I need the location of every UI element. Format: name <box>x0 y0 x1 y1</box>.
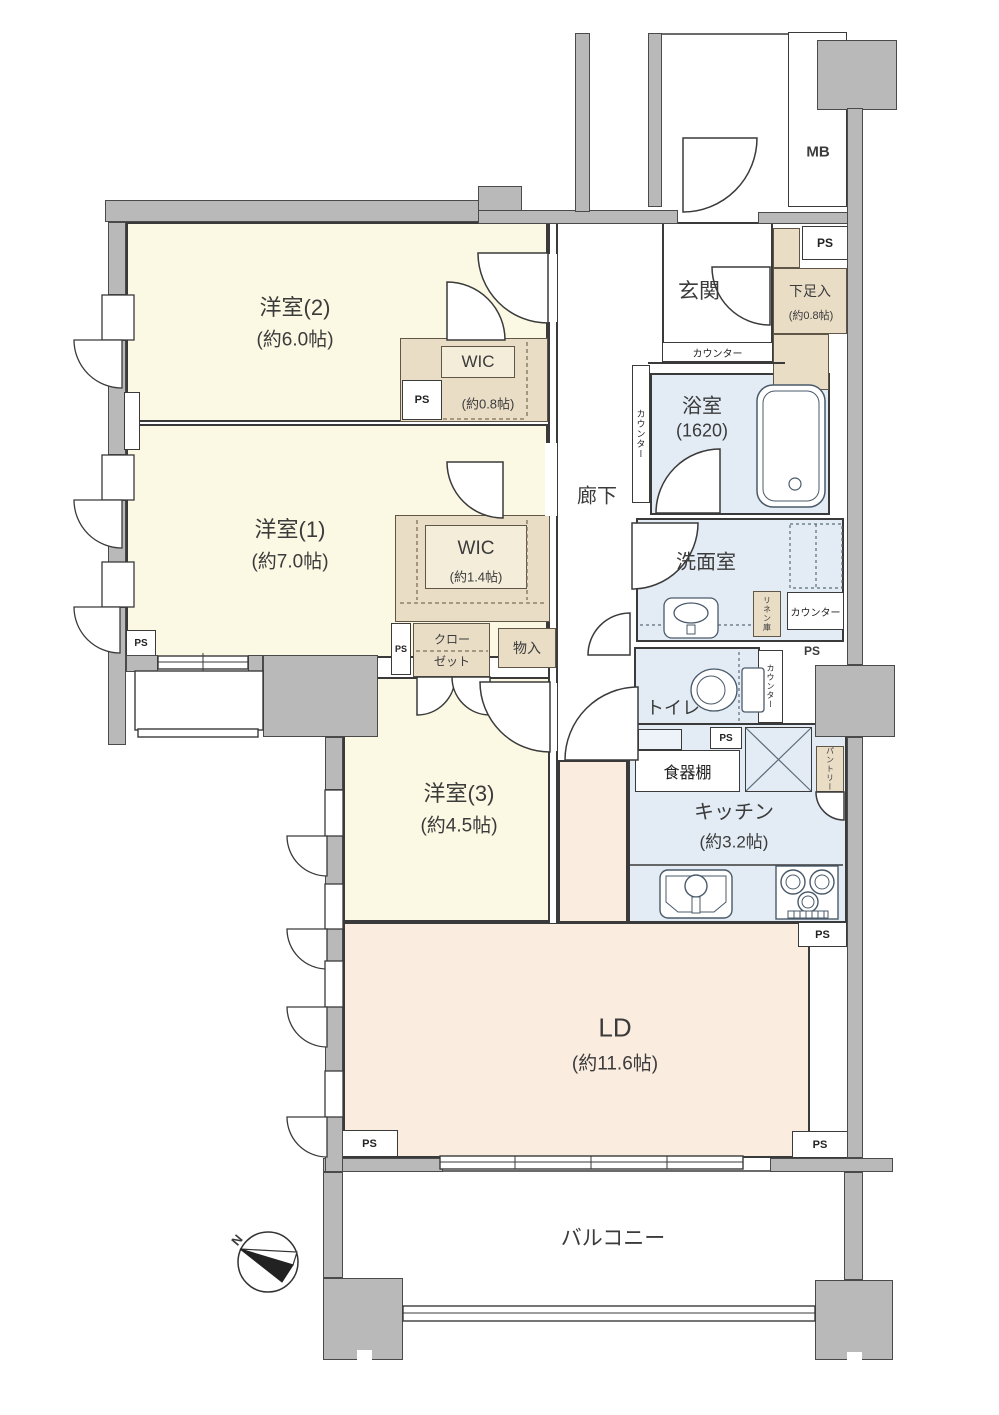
label-pantry: パントリー <box>825 747 836 792</box>
label-western3: 洋室(3) <box>424 776 495 808</box>
bath-door-arc <box>656 449 720 513</box>
label-ld: LD <box>598 1013 631 1044</box>
label-entrance: 玄関 <box>678 275 720 305</box>
label-bathroom: 浴室 <box>682 390 722 419</box>
label-kitchen-size: (約3.2帖) <box>700 828 769 853</box>
label-wic-small-size: (約0.8帖) <box>462 394 515 413</box>
toilet-icon <box>691 668 764 712</box>
label-western2: 洋室(2) <box>260 290 331 322</box>
floor-plan: PS PS カウンター カウンター カウンター カウンター 食器棚 PS PS … <box>0 0 999 1415</box>
entrance-door-arc <box>683 138 757 212</box>
label-bathroom-size: (1620) <box>676 421 728 442</box>
label-hallway: 廊下 <box>577 480 617 509</box>
label-western2-size: (約6.0帖) <box>256 325 333 352</box>
label-closet-line2: ゼット <box>434 653 470 670</box>
ld-door-arc <box>565 687 638 760</box>
refrigerator-cross-icon <box>746 728 811 791</box>
label-mb: MB <box>806 144 829 161</box>
balcony-handrail <box>403 1306 815 1321</box>
toilet-door-arc <box>588 613 630 655</box>
entrance-inner-door-arc <box>712 267 770 325</box>
label-closet-line1: クロー <box>434 631 470 648</box>
label-linen: リネン庫 <box>762 596 773 632</box>
label-wic-large: WIC <box>458 538 495 560</box>
sliding-windows <box>135 653 743 1169</box>
pantry-door-arc <box>816 792 844 820</box>
boundary-lines <box>443 34 843 1171</box>
label-monoire: 物入 <box>513 638 541 658</box>
bathtub-icon <box>757 385 825 507</box>
label-wic-small: WIC <box>461 352 494 372</box>
stove-icon <box>776 866 838 919</box>
label-ps-open: PS <box>804 644 820 658</box>
label-western1-size: (約7.0帖) <box>251 547 328 574</box>
plan-linework <box>0 0 999 1415</box>
label-western1: 洋室(1) <box>255 512 326 544</box>
door-openings <box>545 254 557 751</box>
western3-door-arc <box>480 682 550 752</box>
label-balcony: バルコニー <box>561 1222 666 1252</box>
label-shoe-closet-size: (約0.8帖) <box>789 307 834 323</box>
closet-door-arc <box>417 677 455 715</box>
label-wic-large-size: (約1.4帖) <box>450 567 503 586</box>
label-kitchen: キッチン <box>694 796 774 825</box>
label-shoe-closet: 下足入 <box>789 281 831 301</box>
label-washroom: 洗面室 <box>676 546 736 575</box>
western1-door-arc <box>447 462 503 518</box>
washbasin-icon <box>664 598 718 638</box>
compass-icon <box>238 1232 298 1292</box>
label-ld-size: (約11.6帖) <box>572 1049 658 1076</box>
label-western3-size: (約4.5帖) <box>420 811 497 838</box>
kitchen-sink-icon <box>660 870 732 918</box>
label-toilet: トイレ <box>646 694 700 720</box>
